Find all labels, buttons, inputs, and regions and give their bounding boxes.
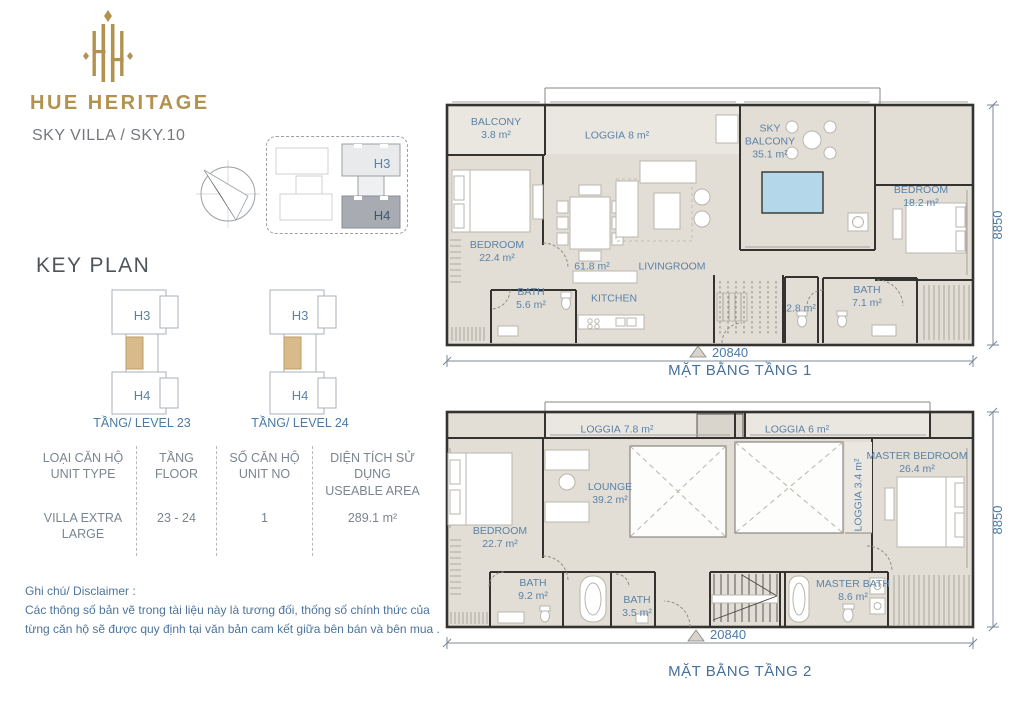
disclaimer-line-2: từng căn hộ sẽ được quy định tại văn bản… [25, 620, 440, 639]
col-header-vi: SỐ CĂN HỘ [229, 450, 299, 466]
room-name: MASTER BEDROOM [867, 450, 968, 462]
room-label-balcony: BALCONY3.8 m² [471, 116, 521, 142]
unit-subtitle: SKY VILLA / SKY.10 [32, 127, 185, 145]
room-name: SKY BALCONY [741, 122, 799, 148]
col-header-en: FLOOR [137, 466, 216, 482]
useable-area-value: 289.1 m² [325, 510, 421, 526]
room-name: LOGGIA [580, 423, 620, 435]
brand-monogram-icon [82, 10, 134, 90]
site-inset-drawing: H3 H4 [268, 138, 407, 233]
floor-plan-1-drawing: 20840 8850 [440, 85, 1020, 377]
brand-name: HUE HERITAGE [30, 92, 210, 115]
floor1-width-dimension: 20840 [712, 345, 748, 360]
entrance-marker-floor1 [690, 346, 706, 357]
room-area: 18.2 m² [894, 197, 948, 210]
room-label-livingroom: LIVINGROOM [638, 260, 705, 273]
table-col-unit-type: LOẠI CĂN HỘUNIT TYPE VILLA EXTRA LARGE [30, 446, 136, 556]
room-area: 39.2 m² [588, 494, 632, 507]
room-area: 3.5 m² [622, 607, 652, 620]
room-name: LIVINGROOM [638, 260, 705, 272]
room-area: 6 m² [808, 423, 829, 435]
entrance-marker-floor2 [688, 630, 704, 641]
room-area: 3.8 m² [471, 129, 521, 142]
floor2-height-dimension: 8850 [990, 506, 1005, 535]
room-area: 7.1 m² [852, 297, 882, 310]
room-area: 26.4 m² [899, 463, 935, 475]
keyplan-level-23-caption: TẦNG/ LEVEL 23 [82, 416, 202, 430]
keyplan-level-24-caption: TẦNG/ LEVEL 24 [240, 416, 360, 430]
room-name: BEDROOM [894, 184, 948, 197]
room-area: 9.2 m² [518, 590, 548, 603]
disclaimer-title: Ghi chú/ Disclaimer : [25, 582, 440, 601]
room-area: 22.7 m² [473, 538, 527, 551]
col-header-en: UNIT NO [217, 466, 312, 482]
col-header-vi: DIỆN TÍCH SỬ DỤNG [323, 450, 423, 483]
keyplan24-h3-label: H3 [292, 308, 309, 323]
col-header-vi: TẦNG [159, 450, 194, 466]
inset-h4-label: H4 [374, 208, 391, 223]
col-header-vi: LOẠI CĂN HỘ [43, 450, 124, 466]
compass-icon [192, 148, 264, 240]
room-label-lounge: LOUNGE39.2 m² [588, 481, 632, 507]
keyplan24-h4-label: H4 [292, 388, 309, 403]
room-area: 22.4 m² [470, 252, 524, 265]
room-label-bedroom-18: BEDROOM18.2 m² [894, 184, 948, 210]
room-area: 7.8 m² [624, 423, 654, 435]
unit-info-table: LOẠI CĂN HỘUNIT TYPE VILLA EXTRA LARGE T… [30, 446, 432, 556]
room-area: 61.8 m² [574, 260, 610, 272]
keyplan-level-24: H3 H4 [250, 286, 350, 416]
room-name: BATH [516, 286, 546, 299]
room-name: KITCHEN [591, 292, 637, 304]
room-label-wc-28: 2.8 m² [786, 302, 816, 315]
room-area: 8 m² [628, 129, 649, 141]
room-name: BEDROOM [473, 525, 527, 538]
floor-value: 23 - 24 [137, 510, 216, 526]
room-name: LOGGIA [852, 491, 864, 531]
room-area: 3.4 m² [852, 458, 864, 488]
room-name: LOUNGE [588, 481, 632, 494]
disclaimer: Ghi chú/ Disclaimer : Các thông số bản v… [25, 582, 440, 640]
room-name: BATH [518, 577, 548, 590]
room-area: 35.1 m² [741, 149, 799, 162]
room-label-bath-56: BATH5.6 m² [516, 286, 546, 312]
room-label-master-bath: MASTER BATH 8.6 m² [814, 578, 892, 604]
table-col-useable-area: DIỆN TÍCH SỬ DỤNGUSEABLE AREA 289.1 m² [312, 446, 432, 556]
room-label-loggia-6: LOGGIA6 m² [765, 423, 829, 436]
room-area: 2.8 m² [786, 302, 816, 314]
room-label-bath-71: BATH7.1 m² [852, 284, 882, 310]
keyplan23-h3-label: H3 [134, 308, 151, 323]
table-col-floor: TẦNGFLOOR 23 - 24 [136, 446, 216, 556]
unit-type-value: VILLA EXTRA LARGE [35, 510, 131, 543]
room-label-loggia-8: LOGGIA8 m² [585, 129, 649, 142]
floor2-width-dimension: 20840 [710, 627, 746, 642]
room-name: BATH [852, 284, 882, 297]
keyplan-heading: KEY PLAN [36, 254, 150, 278]
room-name: LOGGIA [765, 423, 805, 435]
site-inset: H3 H4 [266, 136, 408, 234]
unit-no-value: 1 [217, 510, 312, 526]
room-name: BEDROOM [470, 239, 524, 252]
col-header-en: USEABLE AREA [313, 483, 432, 499]
room-area: 8.6 m² [838, 591, 868, 603]
room-name: BATH [622, 594, 652, 607]
room-label-bedroom-227: BEDROOM22.7 m² [473, 525, 527, 551]
floor-1-caption: MẶT BẰNG TẦNG 1 [500, 362, 980, 379]
page: HUE HERITAGE SKY VILLA / SKY.10 H3 H4 KE… [0, 0, 1024, 724]
room-label-master-bedroom: MASTER BEDROOM 26.4 m² [865, 450, 969, 476]
room-label-bath-35: BATH3.5 m² [622, 594, 652, 620]
inset-h3-label: H3 [374, 156, 391, 171]
room-area: 5.6 m² [516, 299, 546, 312]
room-label-loggia-34: LOGGIA3.4 m² [852, 458, 865, 531]
room-label-bedroom-22: BEDROOM22.4 m² [470, 239, 524, 265]
table-col-unit-no: SỐ CĂN HỘUNIT NO 1 [216, 446, 312, 556]
room-label-sky-balcony: SKY BALCONY35.1 m² [741, 122, 799, 161]
keyplan-level-23: H3 H4 [92, 286, 192, 416]
room-name: LOGGIA [585, 129, 625, 141]
room-name: BALCONY [471, 116, 521, 129]
disclaimer-line-1: Các thông số bản vẽ trong tài liệu này l… [25, 601, 440, 620]
floor1-height-dimension: 8850 [990, 211, 1005, 240]
room-label-bath-92: BATH9.2 m² [518, 577, 548, 603]
room-name: MASTER BATH [816, 578, 890, 590]
room-label-kitchen: KITCHEN [591, 292, 637, 305]
room-label-living-area: 61.8 m² [574, 260, 610, 273]
room-label-loggia-78: LOGGIA7.8 m² [580, 423, 653, 436]
floor-2-caption: MẶT BẰNG TẦNG 2 [500, 663, 980, 680]
keyplan23-h4-label: H4 [134, 388, 151, 403]
col-header-en: UNIT TYPE [30, 466, 136, 482]
